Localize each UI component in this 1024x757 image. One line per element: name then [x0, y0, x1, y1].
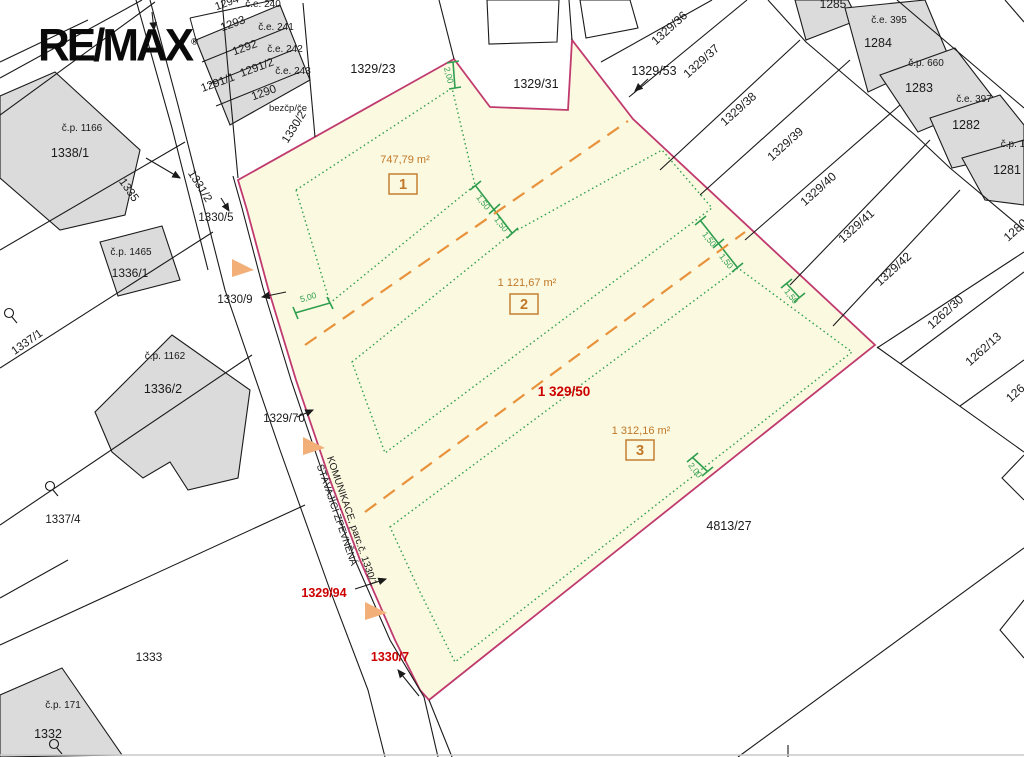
parcel-label: 1332	[34, 727, 62, 741]
parcel-label: 1330/9	[217, 294, 252, 306]
parcel-1330-7-label: 1330/7	[371, 650, 409, 664]
parcel-label: č.e. 397	[956, 94, 992, 105]
parcel-1329-50-label: 1 329/50	[538, 384, 591, 399]
parcel-label: 1285	[820, 0, 847, 11]
parcel-label: 1282	[952, 118, 980, 132]
parcel-label: č.e. 240	[245, 0, 281, 10]
parcel-label: 1283	[905, 81, 933, 95]
subparcel-1-area: 747,79 m²	[380, 154, 430, 166]
parcel-label: č.e. 242	[267, 44, 303, 55]
parcel-label: č.p. 1465	[110, 247, 152, 258]
remax-logo-text: RE/MAX	[38, 20, 191, 71]
parcel-label: 1336/1	[112, 266, 149, 280]
parcel-label: č.p. 171	[45, 700, 81, 711]
subparcel-3-number: 3	[636, 443, 644, 459]
parcel-label: 1333	[136, 650, 163, 664]
cadastral-map-screenshot: 1294č.e. 2401293č.e. 2411292č.e. 2421291…	[0, 0, 1024, 757]
subparcel-2-number: 2	[520, 297, 528, 313]
parcel-label: 1329/70	[263, 413, 305, 425]
parcel-label: 1338/1	[51, 146, 89, 160]
parcel-label: 1330/5	[198, 212, 233, 224]
parcel-label: č.p. 660	[908, 58, 944, 69]
parcel-label: č.e. 241	[258, 22, 294, 33]
parcel-label: 1337/4	[45, 514, 81, 526]
parcel-label: 1336/2	[144, 382, 182, 396]
parcel-label: 4813/27	[706, 519, 751, 533]
registered-mark: ®	[191, 36, 198, 46]
parcel-label: č.e. 243	[275, 66, 311, 77]
parcel-label: č.p. 1166	[62, 123, 103, 134]
parcel-label: č.p. 1	[1001, 139, 1024, 150]
subparcel-3-area: 1 312,16 m²	[612, 425, 671, 437]
subparcel-1-number: 1	[399, 177, 407, 193]
parcel-label: 1284	[864, 36, 892, 50]
parcel-label: 1329/31	[513, 77, 558, 91]
parcel-label: č.p. 1162	[145, 351, 186, 362]
remax-logo: RE/MAX®	[38, 23, 198, 69]
parcel-label: č.e. 395	[871, 15, 907, 26]
parcel-label: 1329/53	[631, 64, 676, 78]
subparcel-2-area: 1 121,67 m²	[498, 277, 557, 289]
parcel-label: 1281	[993, 163, 1021, 177]
parcel-label: 1329/23	[350, 62, 395, 76]
cadastral-map: 1294č.e. 2401293č.e. 2411292č.e. 2421291…	[0, 0, 1024, 757]
parcel-1329-94-label: 1329/94	[301, 586, 346, 600]
